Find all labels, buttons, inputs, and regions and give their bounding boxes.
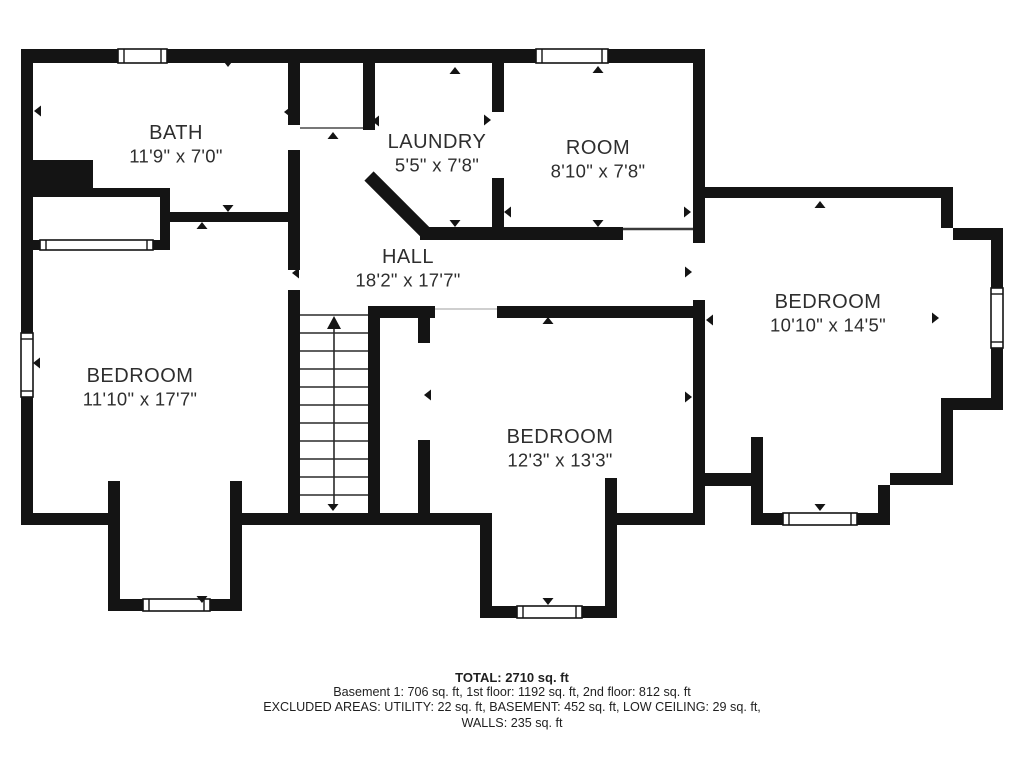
- opening-marker-icon: [932, 313, 939, 324]
- window: [517, 606, 582, 618]
- total-area-text: TOTAL: 2710 sq. ft: [0, 670, 1024, 685]
- wall-segment: [953, 398, 1003, 410]
- room-label: BEDROOM: [87, 365, 194, 387]
- opening-marker-icon: [684, 207, 691, 218]
- wall-segment: [21, 513, 108, 525]
- room-dimensions: 11'9" x 7'0": [129, 146, 222, 167]
- opening-marker-icon: [197, 222, 208, 229]
- room-label: ROOM: [566, 137, 630, 159]
- opening-marker-icon: [685, 267, 692, 278]
- wall-segment: [418, 440, 430, 513]
- opening-marker-icon: [33, 358, 40, 369]
- floor-areas-text: Basement 1: 706 sq. ft, 1st floor: 1192 …: [0, 685, 1024, 700]
- wall-segment: [368, 306, 380, 513]
- opening-marker-icon: [815, 201, 826, 208]
- opening-marker-icon: [328, 504, 339, 511]
- opening-marker-icon: [450, 220, 461, 227]
- wall-segment: [363, 63, 375, 130]
- floor-plan-page: { "footer": { "total": "TOTAL: 2710 sq. …: [0, 0, 1024, 768]
- window: [536, 49, 608, 63]
- room-dimensions: 5'5" x 7'8": [395, 155, 479, 176]
- room-label: BEDROOM: [507, 426, 614, 448]
- wall-segment: [420, 227, 623, 240]
- floor-plan-drawing: BATH11'9" x 7'0"LAUNDRY5'5" x 7'8"ROOM8'…: [0, 0, 1024, 768]
- wall-segment: [890, 473, 953, 485]
- room-label: LAUNDRY: [388, 131, 487, 153]
- wall-segment: [480, 513, 492, 618]
- opening-marker-icon: [543, 317, 554, 324]
- wall-segment: [492, 178, 504, 240]
- wall-segment: [693, 63, 705, 243]
- wall-segment: [120, 599, 143, 611]
- wall-diagonal-segment: [369, 176, 427, 234]
- room-dimensions: 12'3" x 13'3": [507, 450, 612, 471]
- wall-segment: [288, 290, 300, 525]
- opening-marker-icon: [484, 115, 491, 126]
- wall-segment: [210, 599, 230, 611]
- wall-segment: [492, 606, 517, 618]
- opening-marker-icon: [223, 60, 234, 67]
- wall-segment: [170, 212, 300, 222]
- wall-segment: [28, 160, 93, 188]
- opening-marker-icon: [593, 220, 604, 227]
- excluded-areas-text: EXCLUDED AREAS: UTILITY: 22 sq. ft, BASE…: [0, 700, 1024, 715]
- opening-marker-icon: [223, 205, 234, 212]
- wall-segment: [953, 228, 1003, 240]
- wall-segment: [705, 187, 953, 198]
- opening-marker-icon: [685, 392, 692, 403]
- wall-segment: [705, 473, 751, 486]
- opening-marker-icon: [543, 598, 554, 605]
- wall-segment: [21, 49, 33, 525]
- room-dimensions: 8'10" x 7'8": [551, 161, 646, 182]
- opening-marker-icon: [450, 67, 461, 74]
- room-label: BEDROOM: [775, 291, 882, 313]
- walls-area-text: WALLS: 235 sq. ft: [0, 716, 1024, 731]
- opening-marker-icon: [284, 107, 291, 118]
- window: [118, 49, 167, 63]
- opening-marker-icon: [328, 132, 339, 139]
- window: [143, 599, 210, 611]
- opening-marker-icon: [593, 66, 604, 73]
- area-summary: TOTAL: 2710 sq. ft Basement 1: 706 sq. f…: [0, 670, 1024, 731]
- window: [991, 288, 1003, 348]
- opening-marker-icon: [815, 504, 826, 511]
- wall-segment: [497, 306, 695, 318]
- wall-segment: [288, 150, 300, 270]
- wall-segment: [230, 481, 242, 611]
- wall-segment: [605, 478, 617, 618]
- wall-segment: [857, 513, 890, 525]
- wall-segment: [28, 188, 170, 197]
- wall-segment: [582, 606, 605, 618]
- window: [783, 513, 857, 525]
- stairs-up-arrow: [327, 316, 341, 329]
- window: [21, 333, 33, 397]
- wall-segment: [941, 398, 953, 485]
- wall-segment: [617, 513, 705, 525]
- wall-segment: [941, 198, 953, 228]
- wall-segment: [492, 63, 504, 112]
- room-dimensions: 11'10" x 17'7": [83, 389, 198, 410]
- opening-marker-icon: [424, 390, 431, 401]
- wall-segment: [242, 513, 480, 525]
- wall-segment: [693, 300, 705, 525]
- wall-segment: [418, 318, 430, 343]
- opening-marker-icon: [34, 106, 41, 117]
- wall-segment: [108, 481, 120, 611]
- opening-marker-icon: [706, 315, 713, 326]
- opening-marker-icon: [504, 207, 511, 218]
- room-dimensions: 18'2" x 17'7": [355, 270, 460, 291]
- room-label: HALL: [382, 246, 434, 268]
- window: [40, 240, 153, 250]
- room-dimensions: 10'10" x 14'5": [770, 315, 886, 336]
- wall-segment: [751, 437, 763, 525]
- room-label: BATH: [149, 122, 203, 144]
